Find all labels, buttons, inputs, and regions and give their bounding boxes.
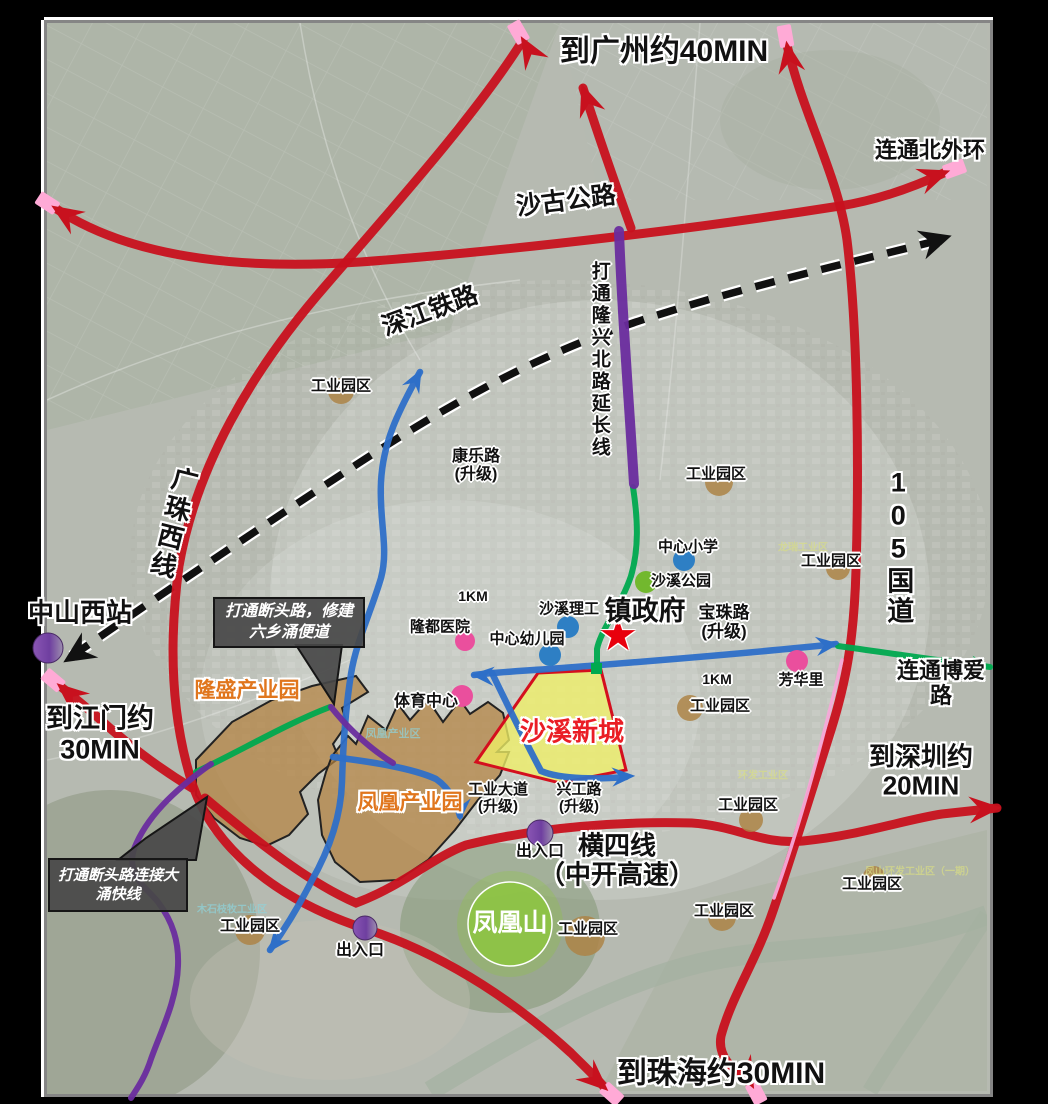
marker-exit-east: [527, 820, 553, 846]
marker-industrial-circle-7: [565, 916, 605, 956]
marker-industrial-circle-8: [708, 903, 736, 931]
marker-facility-dot-2: [451, 685, 473, 707]
marker-industrial-circle-9: [235, 915, 265, 945]
marker-facility-dot-1: [455, 631, 475, 651]
marker-industrial-circle-3: [826, 556, 850, 580]
marker-school-dot-2: [557, 616, 579, 638]
map-page: ★到广州约40MIN连通北外环沙古公路深江铁路打通隆兴北路延长线广珠西线105国…: [0, 0, 1048, 1104]
marker-zhongshan-west-station: [33, 633, 63, 663]
marker-industrial-circle-2: [705, 468, 733, 496]
marker-industrial-circle-5: [739, 808, 763, 832]
marker-industrial-circle-4: [677, 695, 703, 721]
marker-facility-dot-3: [786, 650, 808, 672]
satellite-map-canvas: [0, 0, 1048, 1104]
marker-industrial-circle-6: [863, 866, 885, 888]
marker-industrial-circle-1: [328, 378, 354, 404]
marker-exit-west: [353, 916, 377, 940]
marker-park-dot: [635, 571, 657, 593]
green-terminus-square: [591, 663, 602, 674]
marker-phoenix-mountain: [468, 882, 552, 966]
marker-school-dot-3: [539, 644, 561, 666]
marker-school-dot-1: [673, 549, 695, 571]
